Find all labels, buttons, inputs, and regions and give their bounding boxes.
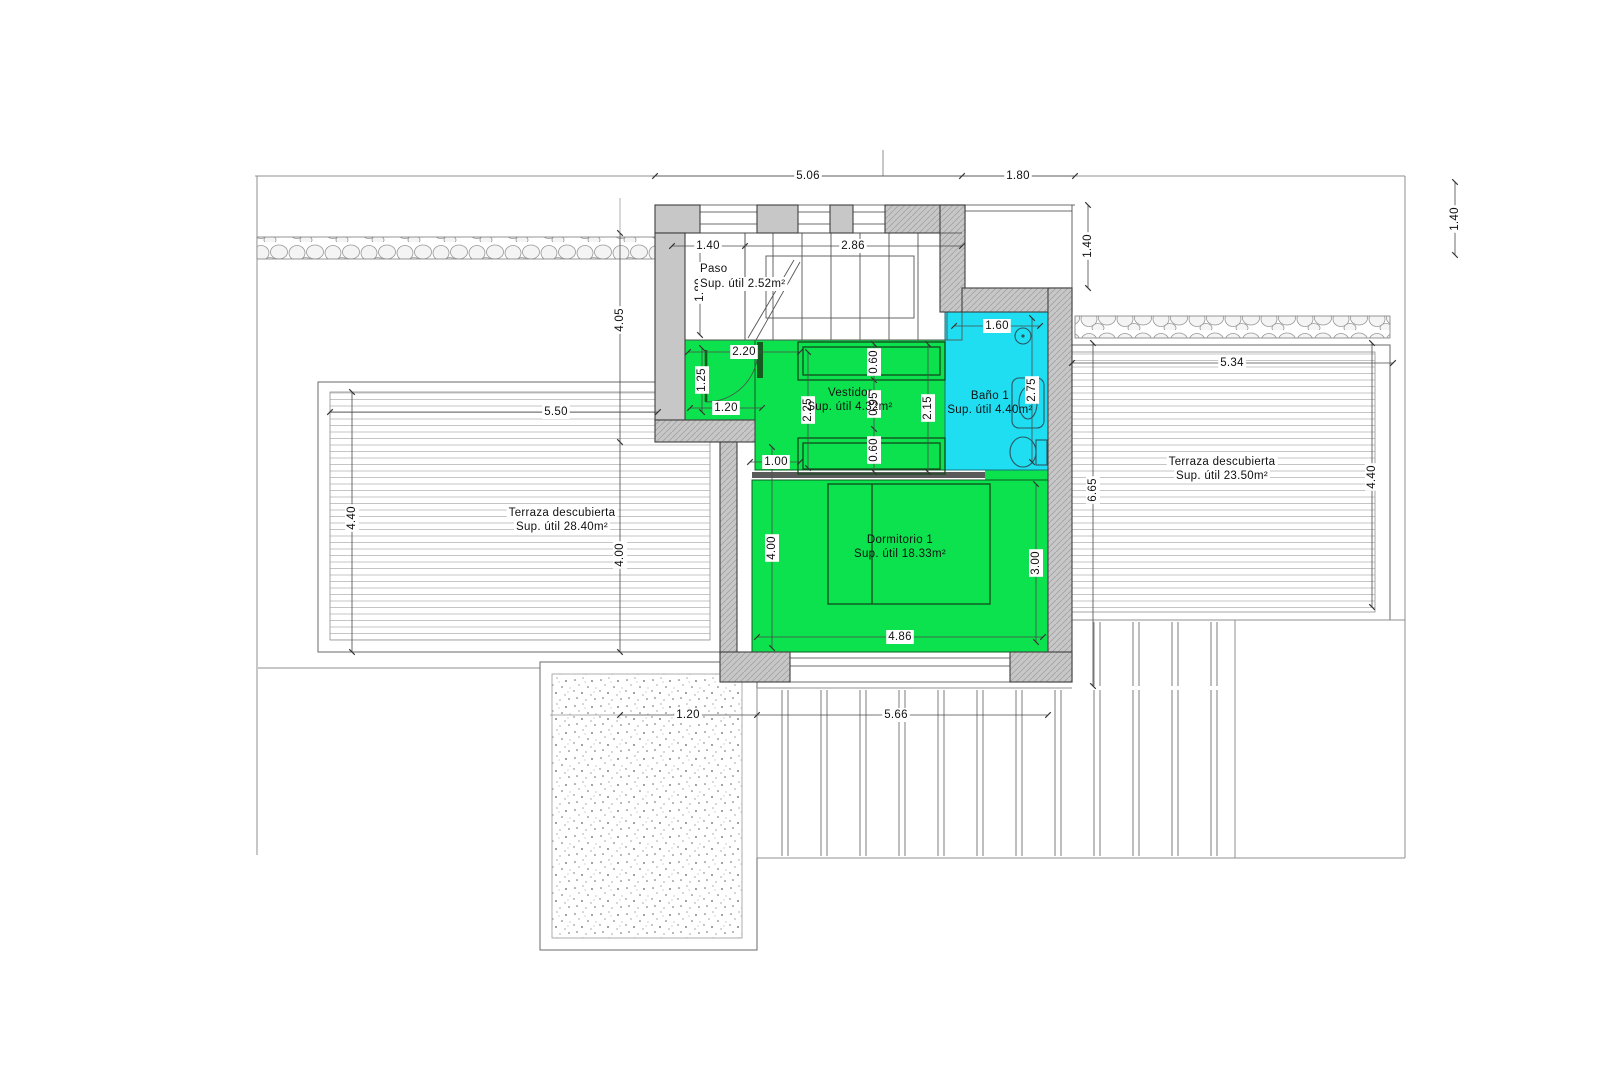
wall-right [1048, 288, 1072, 682]
pergola [757, 620, 1405, 858]
dim-label-top-right: 1.80 [1006, 170, 1030, 182]
wall-top-2 [757, 205, 798, 233]
dim-label-left-lower: 4.00 [614, 543, 626, 567]
dim-label-terr-izq-h: 4.40 [346, 506, 358, 530]
wall-dorm-divider [752, 472, 985, 478]
dim-label-gravel-w: 1.20 [676, 709, 700, 721]
dim-label-wall-gap: 1.00 [764, 456, 788, 468]
dim-label-bath-w: 1.60 [985, 320, 1009, 332]
wall-corner-column [940, 205, 965, 312]
wall-left [655, 233, 685, 420]
stair-railing [766, 256, 914, 318]
dim-label-dorm-w: 4.86 [888, 631, 912, 643]
label-dormitorio-area: Sup. útil 18.33m² [854, 548, 946, 560]
floor-plan-page: 5.06 1.80 1.40 2.86 2.20 1.20 1.00 1.60 … [0, 0, 1600, 1067]
label-vestidor-name: Vestidor [828, 387, 872, 399]
wall-stub-vestidor [757, 342, 763, 378]
dim-label-closet-top: 0.60 [868, 350, 880, 374]
label-dormitorio-name: Dormitorio 1 [867, 534, 933, 546]
label-terraza-der-name: Terraza descubierta [1169, 456, 1276, 468]
label-terraza-izq-name: Terraza descubierta [509, 507, 616, 519]
wall-top-1 [655, 205, 700, 233]
floor-plan-drawing: 5.06 1.80 1.40 2.86 2.20 1.20 1.00 1.60 … [0, 0, 1600, 1067]
rooms [685, 312, 1048, 652]
dim-label-bath-h: 2.75 [1026, 378, 1038, 402]
label-terraza-der-area: Sup. útil 23.50m² [1176, 470, 1268, 482]
gravel-fill [552, 674, 742, 938]
dim-label-left-upper: 4.05 [614, 308, 626, 332]
window-glazing-bottom [790, 658, 1010, 666]
dim-label-stairs-w: 2.86 [841, 240, 865, 252]
dim-label-terr-der-left: 6.65 [1087, 478, 1099, 502]
label-paso-area: Sup. útil 2.52m² [700, 278, 785, 290]
wall-pier-bottom-right [1010, 652, 1072, 682]
dim-label-terr-der-w: 5.34 [1220, 357, 1244, 369]
label-paso-name: Paso [700, 263, 727, 275]
dim-label-niche-h: 1.40 [1082, 234, 1094, 258]
stair-break-lines [748, 260, 800, 340]
dim-label-vest-right: 2.15 [922, 396, 934, 420]
dim-label-top-main: 5.06 [796, 170, 820, 182]
room-dormitorio [752, 480, 1048, 652]
dim-label-paso-w: 1.40 [696, 240, 720, 252]
label-vestidor-area: Sup. útil 4.32m² [807, 401, 892, 413]
shower-center-dot [1021, 334, 1024, 337]
wall-left-lower [720, 442, 737, 654]
dim-label-hall-w: 2.20 [732, 346, 756, 358]
stone-wall-left [257, 237, 655, 259]
label-bano-area: Sup. útil 4.40m² [947, 404, 1032, 416]
wall-step [655, 420, 755, 442]
stone-wall-right [1075, 316, 1390, 338]
dim-label-dorm-left: 4.00 [766, 536, 778, 560]
window-niche [965, 205, 1072, 288]
dim-label-hall-h: 1.25 [696, 368, 708, 392]
dim-label-terr-der-h: 4.40 [1366, 465, 1378, 489]
dim-label-pergola-w: 5.66 [884, 709, 908, 721]
dim-label-terr-izq-w: 5.50 [544, 406, 568, 418]
dim-label-dorm-right: 3.00 [1030, 551, 1042, 575]
dim-label-door-w: 1.20 [714, 402, 738, 414]
wall-pier-bottom-left [720, 652, 790, 682]
pergola-beams-upper [1072, 622, 1222, 686]
dim-label-right-setback: 1.40 [1449, 207, 1461, 231]
wall-top-3 [830, 205, 853, 233]
label-terraza-izq-area: Sup. útil 28.40m² [516, 521, 608, 533]
dim-label-closet-bot: 0.60 [868, 438, 880, 462]
gravel-area [540, 662, 757, 950]
label-bano-name: Baño 1 [971, 390, 1009, 402]
